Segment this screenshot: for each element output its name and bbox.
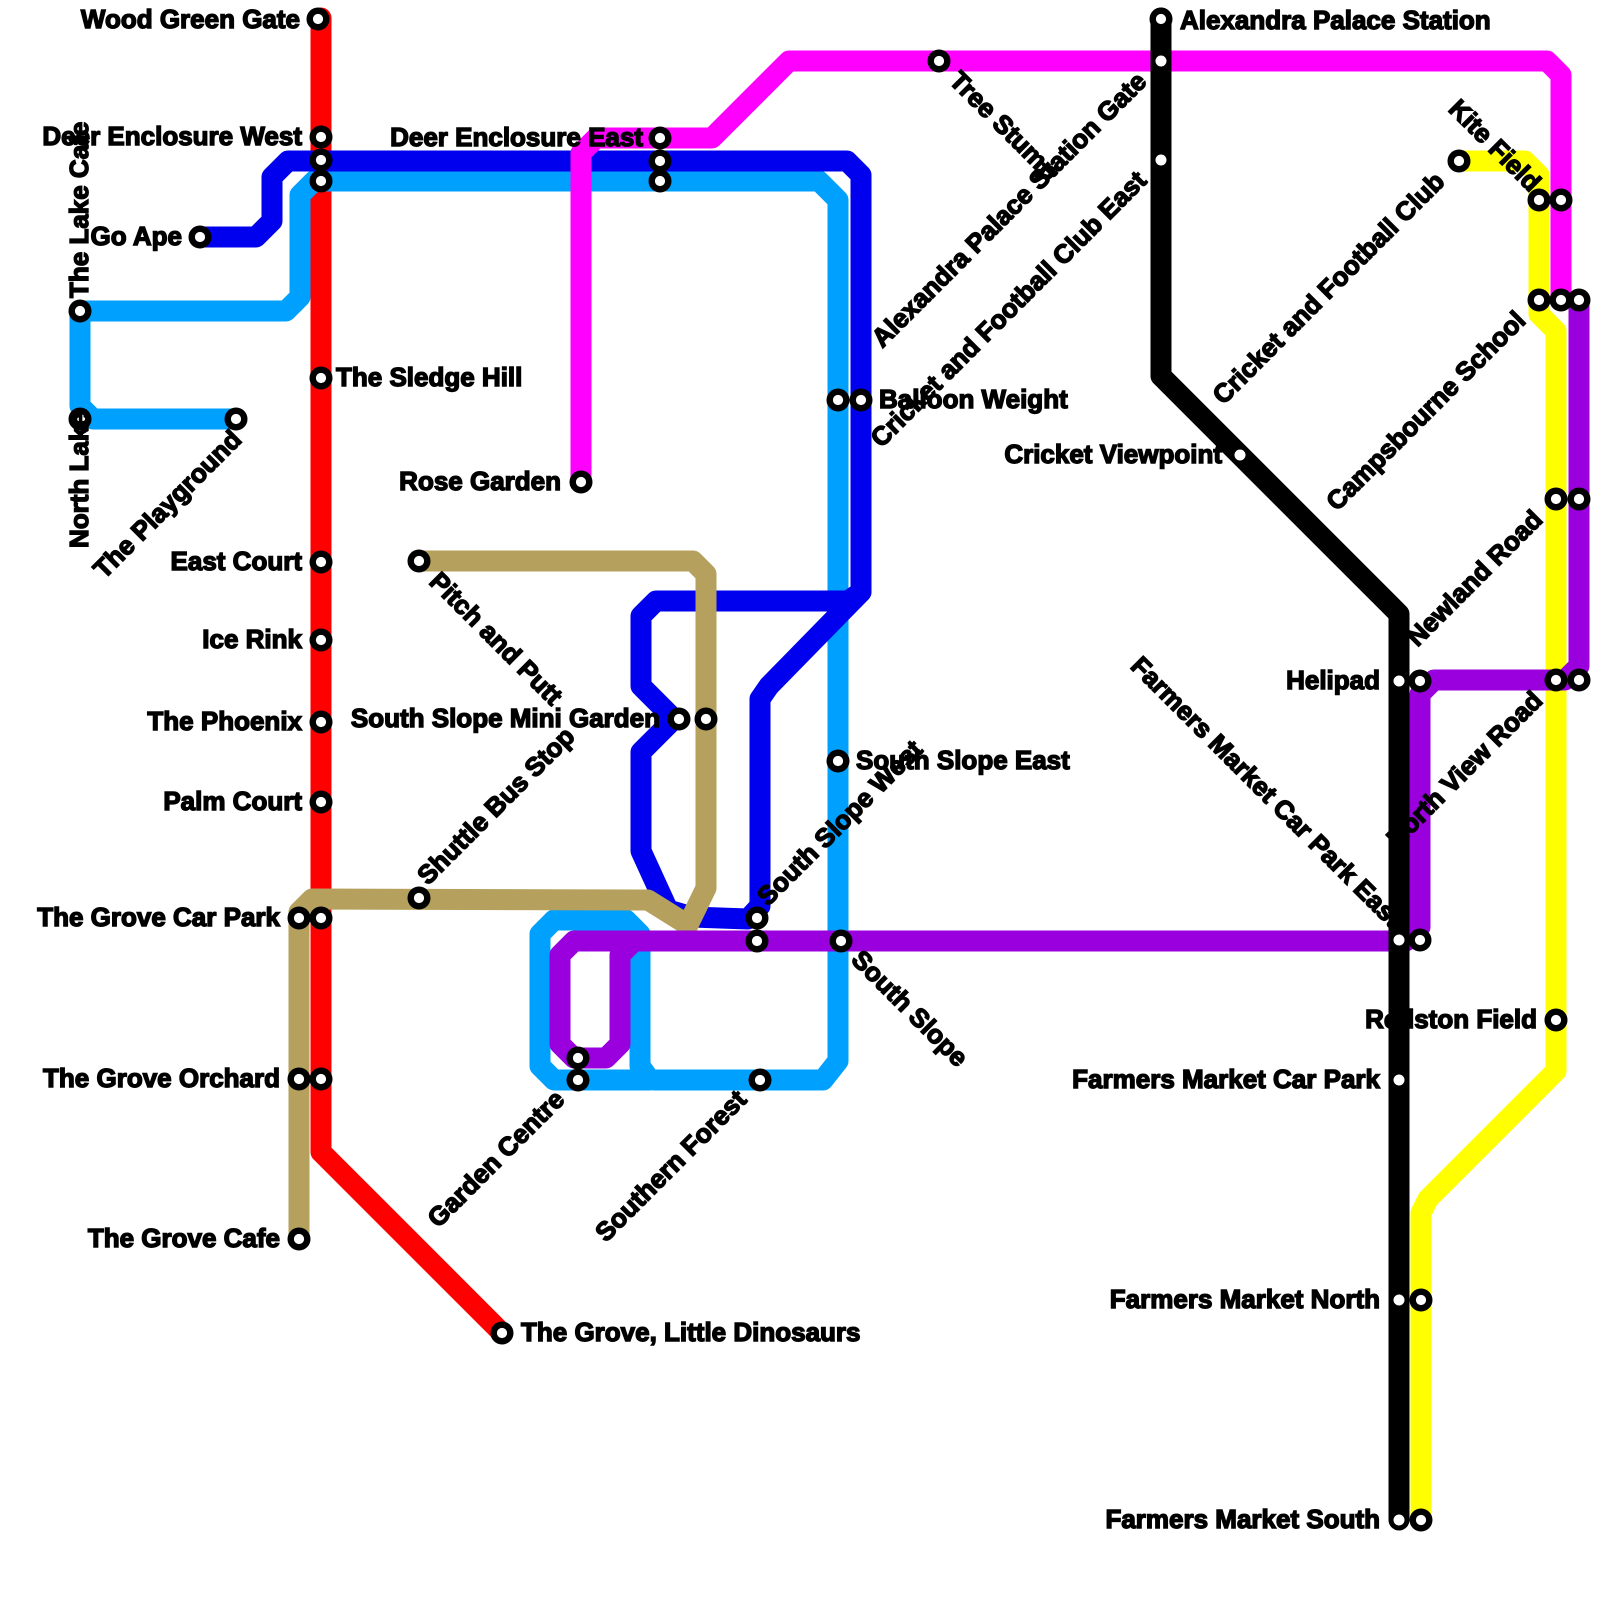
station-balloon-weight-blue xyxy=(853,392,870,409)
station-label-farmers-market-car-park: Farmers Market Car Park xyxy=(1072,1064,1380,1094)
transit-map-canvas: Wood Green GateDeer Enclosure WestGo Ape… xyxy=(0,0,1600,1600)
station-label-southern-forest: Southern Forest xyxy=(589,1084,752,1247)
station-farmers-market-north-yellow xyxy=(1413,1292,1430,1309)
station-deer-enclosure-east-blue xyxy=(652,153,669,170)
station-north-view-road-yellow xyxy=(1548,672,1565,689)
station-label-garden-centre: Garden Centre xyxy=(421,1084,570,1233)
station-south-slope xyxy=(833,933,850,950)
station-south-slope-mini-garden-khaki xyxy=(698,711,715,728)
station-label-wood-green-gate: Wood Green Gate xyxy=(81,4,300,34)
purple-line-loop xyxy=(560,941,640,1058)
station-label-alexandra-palace-station: Alexandra Palace Station xyxy=(1180,5,1491,35)
station-alexandra-palace-station-gate xyxy=(1154,54,1169,69)
station-deer-enclosure-east-magenta xyxy=(652,130,669,147)
station-cricket-and-football-club xyxy=(1451,153,1468,170)
station-kite-field-yellow xyxy=(1531,192,1548,209)
station-label-redston-field: Redston Field xyxy=(1365,1004,1537,1034)
station-label-helipad: Helipad xyxy=(1286,665,1380,695)
station-newland-road-purple xyxy=(1571,491,1588,508)
station-grove-cafe xyxy=(291,1231,308,1248)
station-the-phoenix xyxy=(313,714,330,731)
station-label-ice-rink: Ice Rink xyxy=(202,624,302,654)
station-label-north-lake: North Lake xyxy=(64,412,94,548)
station-ice-rink xyxy=(313,632,330,649)
station-deer-enclosure-west-blue xyxy=(313,152,330,169)
station-farmers-market-south-black xyxy=(1392,1513,1407,1528)
station-deer-enclosure-west-red xyxy=(313,129,330,146)
station-label-south-slope-mini-garden: South Slope Mini Garden xyxy=(351,703,660,733)
station-label-deer-enclosure-east: Deer Enclosure East xyxy=(390,122,643,152)
station-helipad-black xyxy=(1392,674,1407,689)
station-grove-orchard-khaki xyxy=(291,1071,308,1088)
station-north-view-road-purple xyxy=(1571,672,1588,689)
station-campsbourne-school-magenta xyxy=(1553,292,1570,309)
station-farmers-market-south-yellow xyxy=(1413,1512,1430,1529)
station-label-go-ape: Go Ape xyxy=(91,221,182,251)
station-grove-car-park-red xyxy=(313,910,330,927)
station-campsbourne-school-purple xyxy=(1571,292,1588,309)
station-grove-car-park-khaki xyxy=(291,910,308,927)
station-label-the-grove-cafe: The Grove Cafe xyxy=(88,1223,280,1253)
station-shuttle-bus-stop xyxy=(411,890,428,907)
station-go-ape xyxy=(192,229,209,246)
station-southern-forest xyxy=(752,1072,769,1089)
station-label-the-grove-little-dinosaurs: The Grove, Little Dinosaurs xyxy=(521,1317,861,1347)
station-label-kite-field: Kite Field xyxy=(1443,93,1547,197)
station-label-farmers-market-south: Farmers Market South xyxy=(1105,1504,1380,1534)
station-garden-centre-lightblue xyxy=(570,1072,587,1089)
station-label-newland-road: Newland Road xyxy=(1400,504,1548,652)
station-tree-stump xyxy=(931,53,948,70)
station-palm-court xyxy=(313,794,330,811)
station-alexandra-palace-station xyxy=(1153,11,1170,28)
station-label-the-phoenix: The Phoenix xyxy=(147,706,302,736)
station-the-playground xyxy=(228,411,245,428)
station-label-the-grove-car-park: The Grove Car Park xyxy=(37,902,280,932)
station-label-south-slope: South Slope xyxy=(846,944,974,1072)
station-deer-enclosure-east-lightblue xyxy=(652,173,669,190)
station-east-court xyxy=(313,554,330,571)
station-label-cricket-and-football-club: Cricket and Football Club xyxy=(1206,166,1450,410)
station-farmers-market-car-park-east-purple xyxy=(1412,932,1429,949)
station-farmers-market-car-park-east-black xyxy=(1392,933,1407,948)
station-garden-centre-purple xyxy=(570,1050,587,1067)
station-label-farmers-market-north: Farmers Market North xyxy=(1110,1284,1380,1314)
station-cricket-viewpoint xyxy=(1233,448,1248,463)
station-label-the-sledge-hill: The Sledge Hill xyxy=(336,362,522,392)
station-cricket-and-football-club-east xyxy=(1154,153,1169,168)
transit-map: Wood Green GateDeer Enclosure WestGo Ape… xyxy=(0,0,1600,1600)
station-the-sledge-hill xyxy=(313,370,330,387)
station-helipad-purple xyxy=(1412,673,1429,690)
station-balloon-weight-lightblue xyxy=(830,392,847,409)
station-label-palm-court: Palm Court xyxy=(163,786,302,816)
station-label-pitch-and-putt: Pitch and Putt xyxy=(424,566,569,711)
station-farmers-market-car-park xyxy=(1392,1073,1407,1088)
station-wood-green-gate xyxy=(310,11,327,28)
station-south-slope-mini-garden-blue xyxy=(671,711,688,728)
station-label-the-lake-cafe: The Lake Cafe xyxy=(64,122,94,298)
station-grove-orchard-red xyxy=(313,1071,330,1088)
station-kite-field-magenta xyxy=(1553,192,1570,209)
station-label-rose-garden: Rose Garden xyxy=(399,466,561,496)
station-label-shuttle-bus-stop: Shuttle Bus Stop xyxy=(411,721,580,890)
station-south-slope-west-blue xyxy=(749,910,766,927)
station-south-slope-east xyxy=(830,753,847,770)
station-label-campsbourne-school: Campsbourne School xyxy=(1320,305,1531,516)
station-label-the-grove-orchard: The Grove Orchard xyxy=(43,1063,280,1093)
station-the-lake-cafe xyxy=(72,303,89,320)
station-redston-field xyxy=(1548,1012,1565,1029)
station-deer-enclosure-west-lightblue xyxy=(313,173,330,190)
station-newland-road-yellow xyxy=(1548,491,1565,508)
red-line xyxy=(321,18,500,1331)
station-campsbourne-school-yellow xyxy=(1531,292,1548,309)
station-farmers-market-north-black xyxy=(1392,1293,1407,1308)
station-label-east-court: East Court xyxy=(171,546,303,576)
station-south-slope-west-purple xyxy=(749,933,766,950)
station-label-cricket-viewpoint: Cricket Viewpoint xyxy=(1004,439,1222,469)
station-little-dinosaurs xyxy=(494,1325,511,1342)
station-rose-garden xyxy=(573,474,590,491)
station-pitch-and-putt xyxy=(411,553,428,570)
